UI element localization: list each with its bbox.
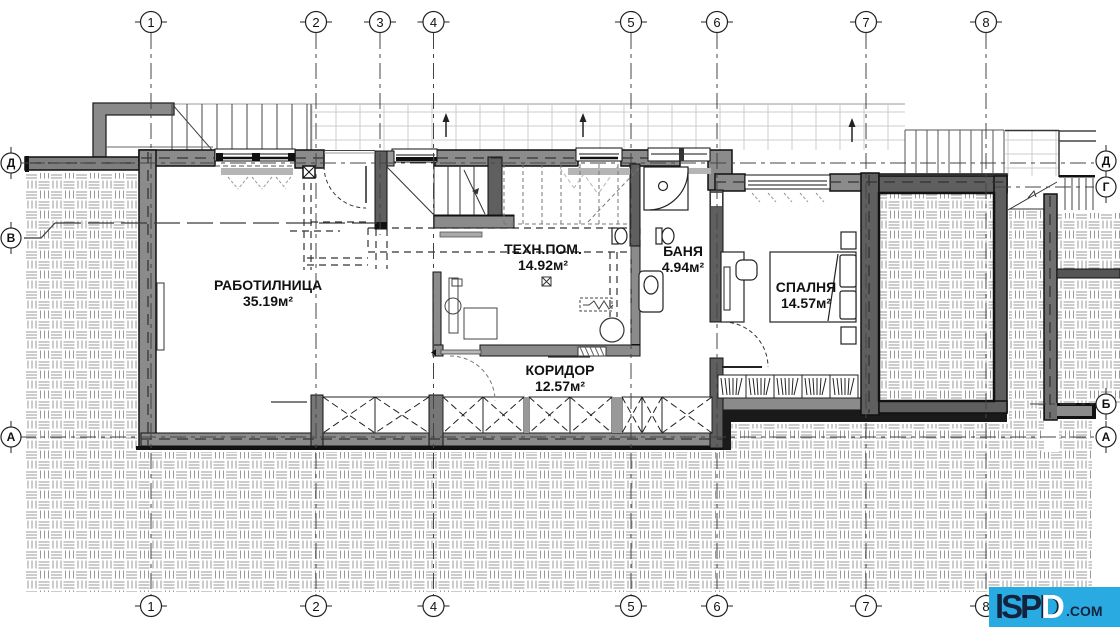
svg-text:3: 3 xyxy=(376,15,383,30)
svg-text:Д: Д xyxy=(7,156,16,170)
svg-text:4: 4 xyxy=(430,15,437,30)
svg-text:БАНЯ: БАНЯ xyxy=(663,243,703,259)
svg-text:4: 4 xyxy=(430,599,437,614)
svg-text:В: В xyxy=(7,231,16,245)
svg-text:КОРИДОР: КОРИДОР xyxy=(525,362,594,378)
svg-text:2: 2 xyxy=(312,15,319,30)
svg-text:12.57м²: 12.57м² xyxy=(535,378,585,394)
svg-text:5: 5 xyxy=(627,599,634,614)
svg-text:1: 1 xyxy=(147,15,154,30)
svg-text:7: 7 xyxy=(862,15,869,30)
svg-text:5: 5 xyxy=(627,15,634,30)
svg-text:35.19м²: 35.19м² xyxy=(243,293,293,309)
svg-text:2: 2 xyxy=(312,599,319,614)
svg-text:8: 8 xyxy=(982,15,989,30)
svg-text:А: А xyxy=(1102,430,1111,444)
svg-text:6: 6 xyxy=(713,599,720,614)
svg-text:ТЕХН.ПОМ.: ТЕХН.ПОМ. xyxy=(504,241,582,257)
svg-text:СПАЛНЯ: СПАЛНЯ xyxy=(776,279,836,295)
svg-text:8: 8 xyxy=(982,599,989,614)
svg-text:4.94м²: 4.94м² xyxy=(662,259,705,275)
svg-text:14.92м²: 14.92м² xyxy=(518,257,568,273)
svg-text:6: 6 xyxy=(713,15,720,30)
svg-text:14.57м²: 14.57м² xyxy=(781,295,831,311)
svg-text:.COM: .COM xyxy=(1066,603,1103,619)
svg-text:А: А xyxy=(7,430,16,444)
svg-text:Г: Г xyxy=(1103,180,1110,194)
svg-text:Б: Б xyxy=(1102,397,1111,411)
svg-text:1: 1 xyxy=(147,599,154,614)
svg-text:РАБОТИЛНИЦА: РАБОТИЛНИЦА xyxy=(214,277,322,293)
svg-text:Д: Д xyxy=(1102,154,1111,168)
svg-text:7: 7 xyxy=(862,599,869,614)
svg-text:D: D xyxy=(1041,588,1064,625)
